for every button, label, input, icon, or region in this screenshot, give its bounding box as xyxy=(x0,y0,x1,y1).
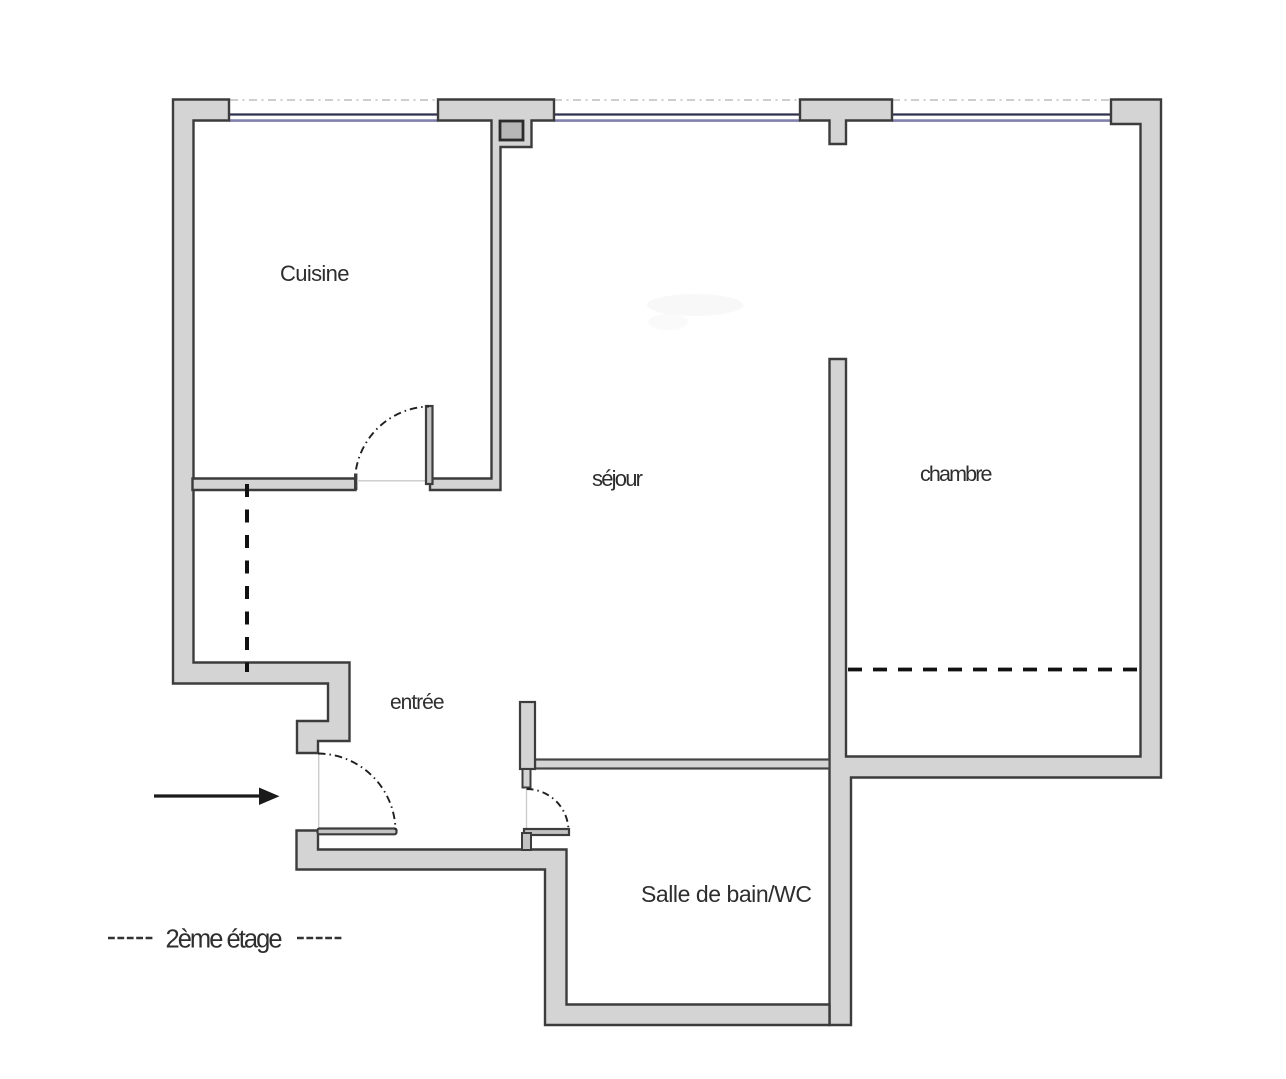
svg-text:entrée: entrée xyxy=(390,691,445,714)
svg-text:séjour: séjour xyxy=(592,466,643,491)
svg-text:Cuisine: Cuisine xyxy=(280,261,350,286)
svg-text:2ème étage: 2ème étage xyxy=(166,926,283,954)
svg-text:chambre: chambre xyxy=(920,462,993,486)
svg-text:Salle de bain/WC: Salle de bain/WC xyxy=(641,881,812,907)
